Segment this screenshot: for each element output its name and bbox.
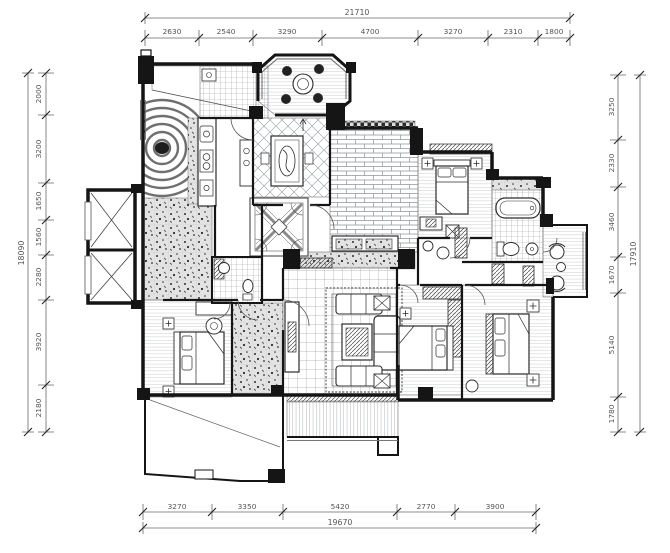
dim-right-3: 1670 bbox=[607, 265, 616, 284]
dim-right-4: 5140 bbox=[607, 335, 616, 354]
dim-top-2: 3290 bbox=[278, 27, 297, 36]
stone-path-floor-a bbox=[143, 198, 212, 300]
dim-top-1: 2540 bbox=[217, 27, 236, 36]
dimension-right bbox=[610, 71, 646, 436]
dimension-left bbox=[22, 69, 54, 436]
dim-right-0: 3250 bbox=[607, 97, 616, 116]
dim-right-5: 1780 bbox=[607, 404, 616, 423]
dim-bottom-4: 3900 bbox=[486, 502, 505, 511]
dim-top-0: 2630 bbox=[163, 27, 182, 36]
dim-right-1: 2330 bbox=[607, 153, 616, 172]
floor-plan-drawing: 21710 2630 2540 3290 4700 3270 2310 1800… bbox=[0, 0, 670, 553]
family-room-floor bbox=[330, 128, 418, 252]
dim-bottom-0: 3270 bbox=[168, 502, 187, 511]
dim-top-6: 1800 bbox=[545, 27, 564, 36]
dim-bottom-1: 3350 bbox=[238, 502, 257, 511]
media-console bbox=[332, 236, 398, 251]
elevator-core bbox=[85, 190, 135, 303]
stone-path-floor-b bbox=[232, 303, 283, 395]
dim-left-1: 3200 bbox=[34, 139, 43, 158]
planter-strip bbox=[188, 118, 199, 204]
deck-balcony-floor bbox=[287, 401, 398, 437]
dim-left-0: 2000 bbox=[34, 84, 43, 103]
bathroom-main-mosaic bbox=[492, 178, 543, 190]
floor-plan-canvas: 21710 2630 2540 3290 4700 3270 2310 1800… bbox=[0, 0, 670, 553]
terrace-walls bbox=[145, 395, 283, 481]
dim-left-5: 3920 bbox=[34, 332, 43, 351]
dim-bottom-total: 19670 bbox=[328, 518, 353, 527]
dim-top-4: 3270 bbox=[444, 27, 463, 36]
dim-right-2: 3460 bbox=[607, 212, 616, 231]
toilet-bowl bbox=[503, 243, 519, 256]
dim-bottom-2: 5420 bbox=[331, 502, 350, 511]
dim-right-total: 17910 bbox=[629, 242, 638, 267]
dim-left-4: 2280 bbox=[34, 267, 43, 286]
side-table bbox=[437, 247, 449, 259]
dim-top-5: 2310 bbox=[504, 27, 523, 36]
dim-bottom-3: 2770 bbox=[417, 502, 436, 511]
dim-top-total: 21710 bbox=[345, 8, 370, 17]
dim-left-3: 1560 bbox=[34, 227, 43, 246]
dim-left-total: 18090 bbox=[17, 241, 26, 266]
dim-left-6: 2180 bbox=[34, 398, 43, 417]
tv-screen bbox=[288, 322, 296, 352]
dim-left-2: 1650 bbox=[34, 191, 43, 210]
foyer-medallion bbox=[250, 198, 308, 256]
stool bbox=[423, 241, 433, 251]
dim-top-3: 4700 bbox=[361, 27, 380, 36]
